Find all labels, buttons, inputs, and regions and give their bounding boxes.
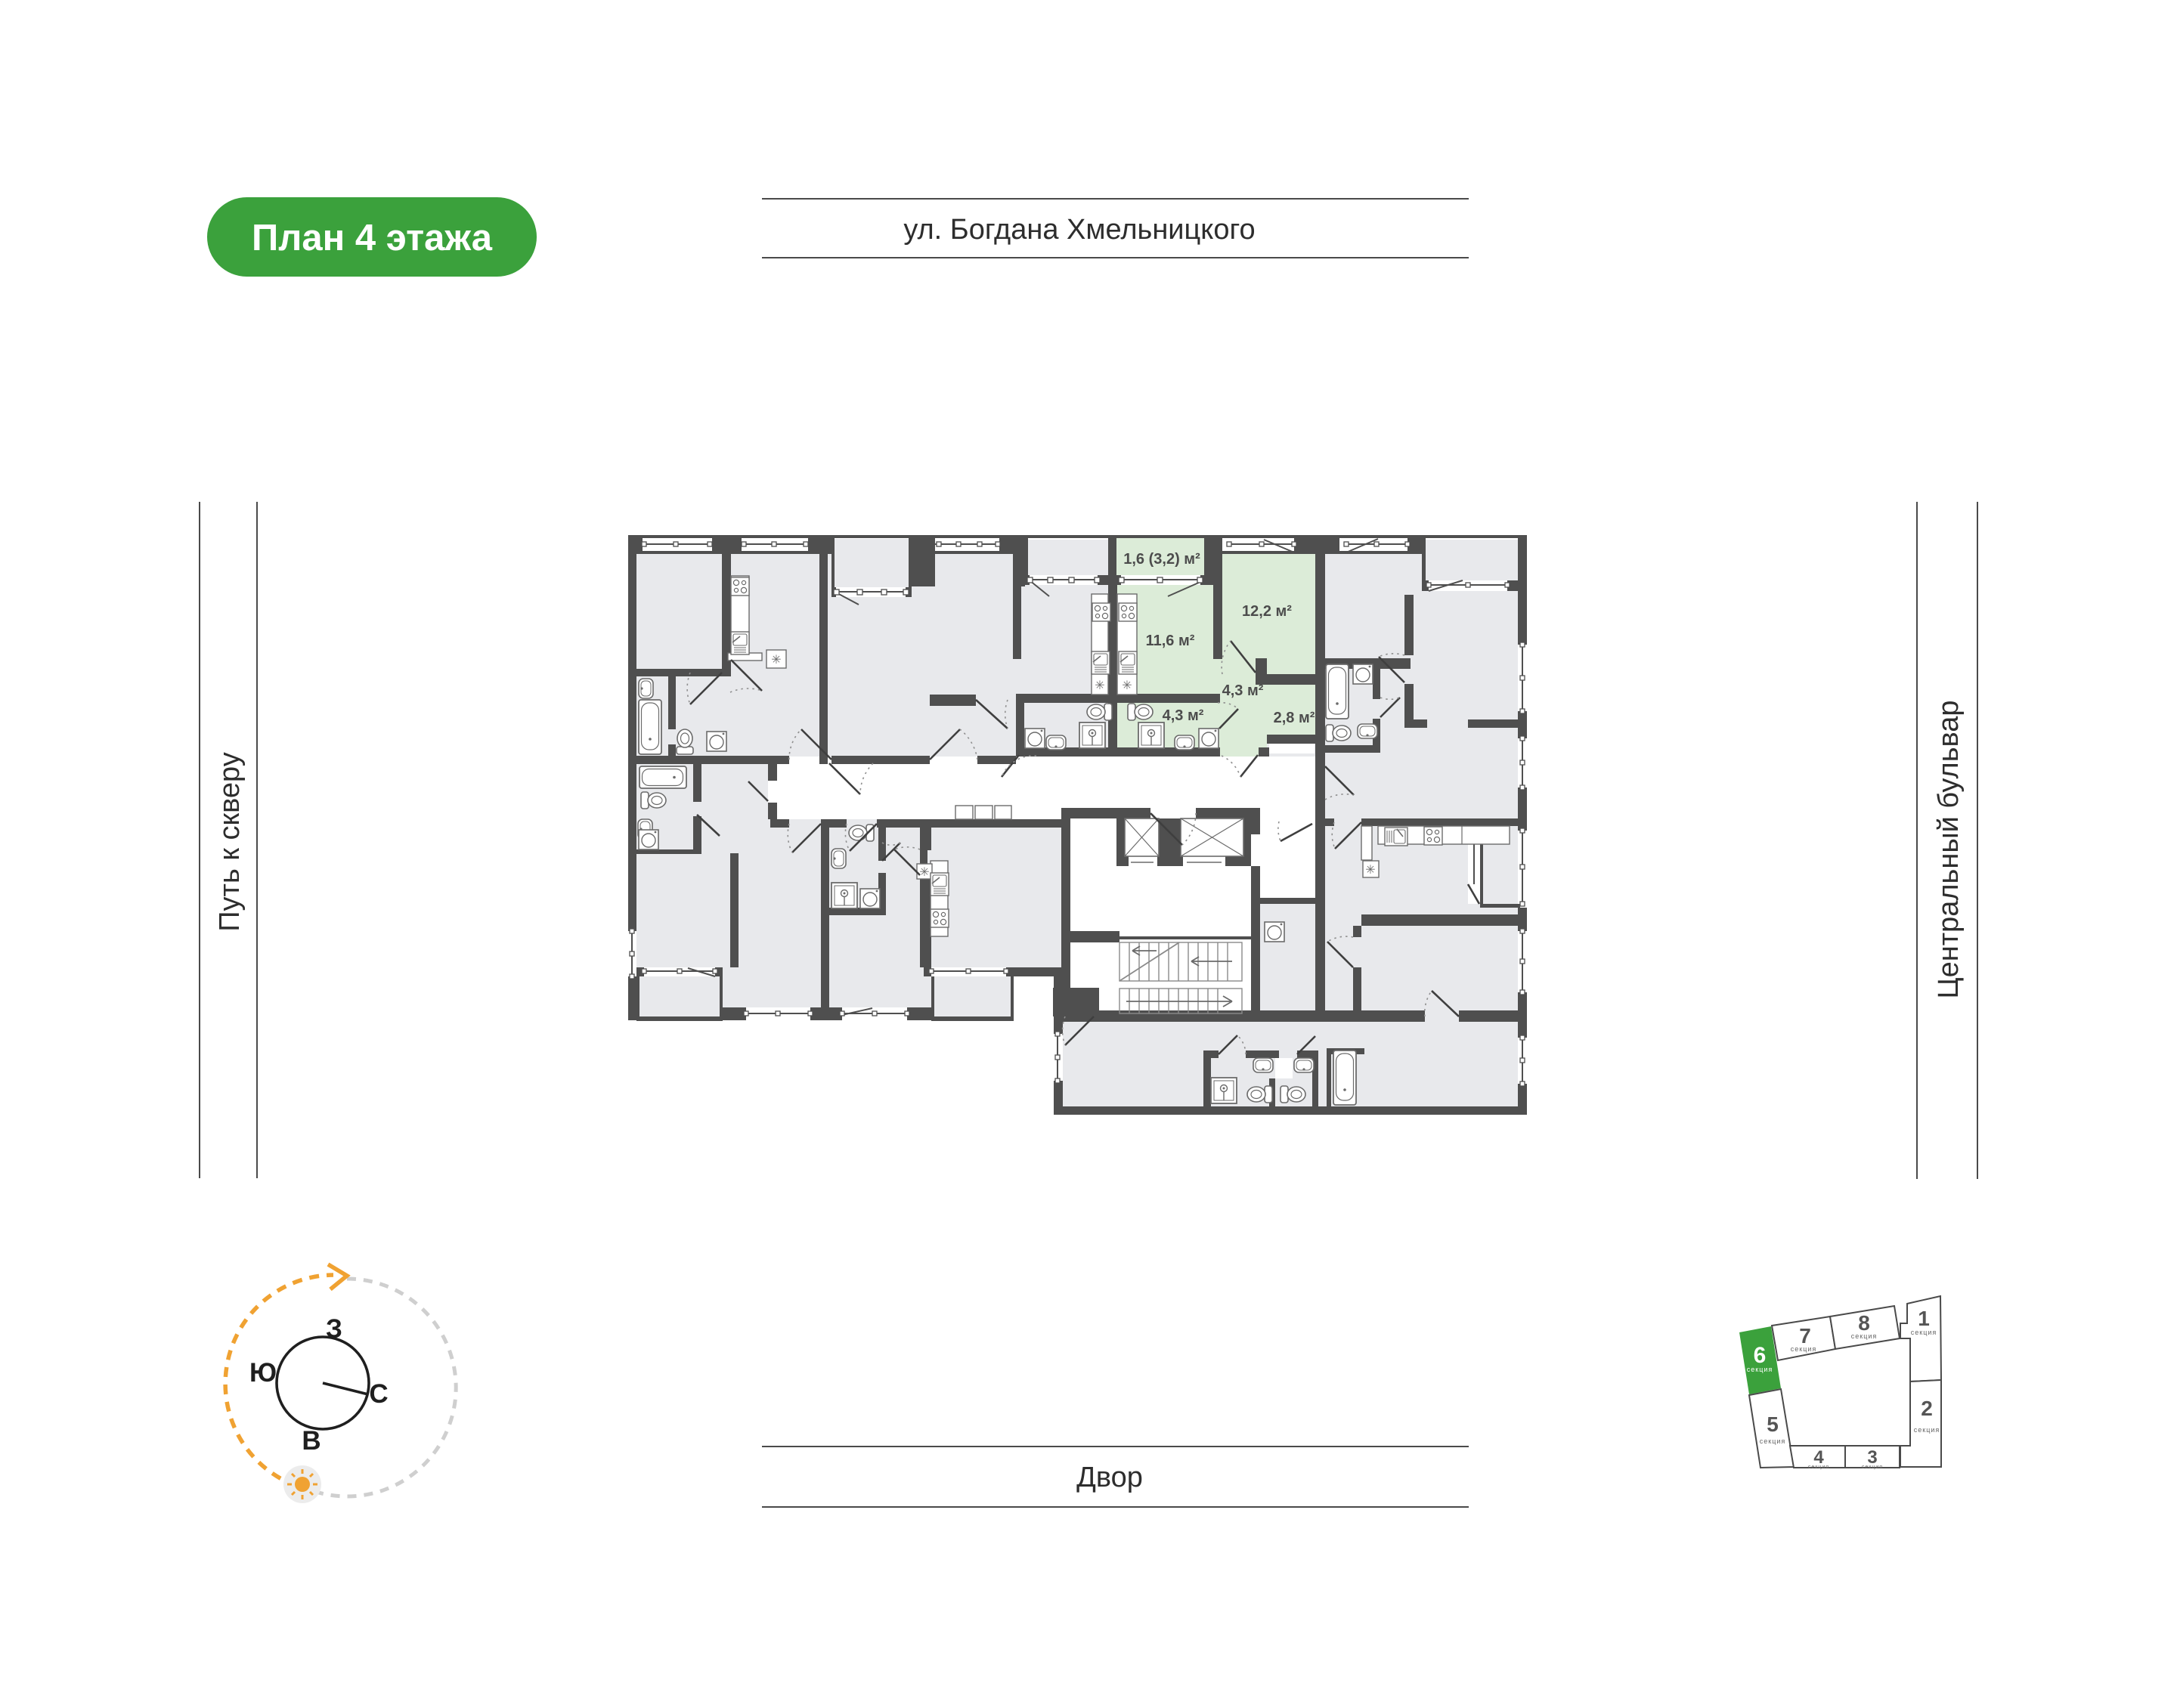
svg-text:5: 5 <box>1767 1413 1779 1436</box>
svg-text:8: 8 <box>1858 1311 1870 1335</box>
svg-text:6: 6 <box>1754 1343 1767 1368</box>
svg-text:Ю: Ю <box>249 1358 277 1388</box>
svg-text:Центральный бульвар: Центральный бульвар <box>1933 700 1965 998</box>
svg-text:✳: ✳ <box>1122 679 1132 692</box>
svg-text:секция: секция <box>1911 1329 1937 1336</box>
svg-text:2,8 м²: 2,8 м² <box>1274 710 1315 726</box>
svg-text:7: 7 <box>1799 1324 1811 1348</box>
svg-text:секция: секция <box>1862 1465 1883 1470</box>
svg-text:С: С <box>369 1379 388 1409</box>
svg-text:секция: секция <box>1747 1366 1773 1373</box>
svg-text:В: В <box>302 1426 321 1456</box>
svg-text:Путь к скверу: Путь к скверу <box>214 752 246 931</box>
svg-text:✳: ✳ <box>1365 864 1375 877</box>
svg-text:Двор: Двор <box>1076 1462 1143 1493</box>
svg-text:секция: секция <box>1914 1426 1940 1434</box>
svg-text:4,3 м²: 4,3 м² <box>1163 707 1204 724</box>
svg-text:✳: ✳ <box>1095 679 1104 692</box>
svg-text:12,2 м²: 12,2 м² <box>1242 603 1292 620</box>
svg-text:2: 2 <box>1921 1397 1933 1420</box>
svg-text:План 4 этажа: План 4 этажа <box>252 218 493 258</box>
svg-text:✳: ✳ <box>771 654 781 667</box>
svg-text:11,6 м²: 11,6 м² <box>1146 633 1195 649</box>
svg-text:секция: секция <box>1791 1345 1817 1353</box>
svg-text:З: З <box>326 1314 342 1344</box>
svg-text:секция: секция <box>1808 1465 1829 1470</box>
svg-text:1: 1 <box>1918 1307 1930 1330</box>
svg-text:✳: ✳ <box>919 866 929 879</box>
svg-text:4,3 м²: 4,3 м² <box>1222 682 1264 699</box>
svg-text:ул. Богдана Хмельницкого: ул. Богдана Хмельницкого <box>903 214 1255 246</box>
svg-text:секция: секция <box>1851 1332 1878 1340</box>
svg-text:1,6 (3,2) м²: 1,6 (3,2) м² <box>1123 551 1200 568</box>
svg-text:секция: секция <box>1760 1437 1786 1445</box>
